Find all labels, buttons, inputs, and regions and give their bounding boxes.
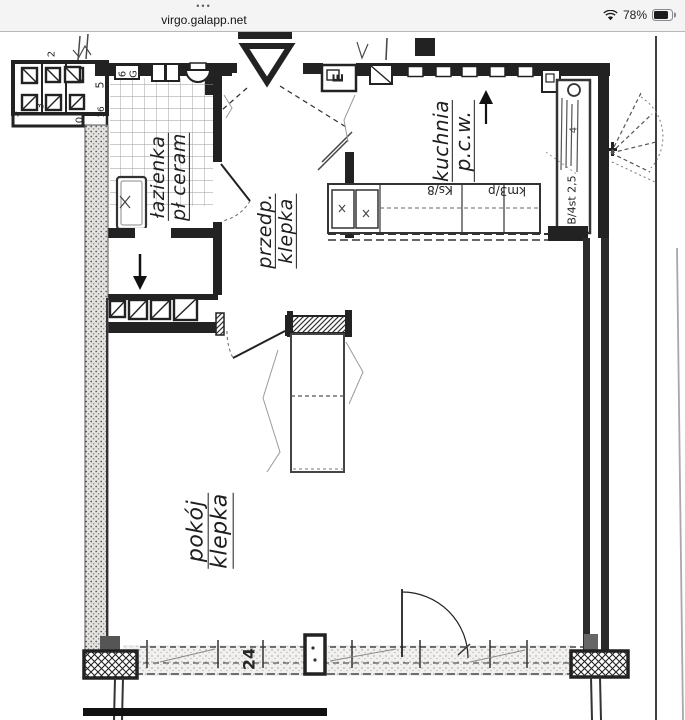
browser-window: ••• virgo.galapp.net 78% xyxy=(0,0,685,720)
fixture-digit: G xyxy=(129,70,140,78)
status-icons: 78% xyxy=(603,8,676,22)
room-label-kitchen: kuchnia p.c.w. xyxy=(431,100,475,182)
room-label-bathroom: łazienka pł ceram xyxy=(148,133,190,221)
page-menu-dots[interactable]: ••• xyxy=(180,1,228,11)
scan-crumple-marks xyxy=(224,95,578,175)
shaft-digit: 0 xyxy=(75,117,86,123)
shaft-digit: 3 xyxy=(36,103,47,109)
right-counter-label: B/4st 2,5 xyxy=(566,175,579,224)
shaft-block-top-left xyxy=(13,62,107,126)
floor-plan-scan: łazienka pł ceram przedp. klepka kuchnia… xyxy=(0,0,685,720)
shaft-digit: 16 xyxy=(97,106,107,117)
battery-percent-label: 78% xyxy=(623,8,647,22)
counter-label-ks8: Ks/8 xyxy=(427,183,453,197)
dimension-24: 24 xyxy=(240,648,259,670)
browser-status-bar: ••• virgo.galapp.net 78% xyxy=(0,0,685,32)
fixture-digit: 6 xyxy=(118,71,129,77)
left-wall xyxy=(85,125,108,655)
counter-label-km3p: km3/p xyxy=(488,184,526,198)
battery-icon xyxy=(652,9,676,21)
shaft-digit: 5 xyxy=(94,82,107,89)
page-fold-lines xyxy=(656,36,683,720)
room-label-hallway: przedp. klepka xyxy=(255,193,297,268)
meter-box-label: E xyxy=(331,73,347,83)
right-wall xyxy=(583,93,663,654)
address-bar-url[interactable]: virgo.galapp.net xyxy=(104,13,304,27)
hallway-door xyxy=(227,315,293,358)
bottom-wall-band xyxy=(83,589,628,720)
shaft-digit: 5 xyxy=(11,111,22,117)
room-label-living-room: pokój klepka xyxy=(185,493,234,569)
shaft-digit: 2 xyxy=(47,51,58,57)
counter-digit: 4 xyxy=(569,127,580,133)
wifi-icon xyxy=(603,10,618,21)
